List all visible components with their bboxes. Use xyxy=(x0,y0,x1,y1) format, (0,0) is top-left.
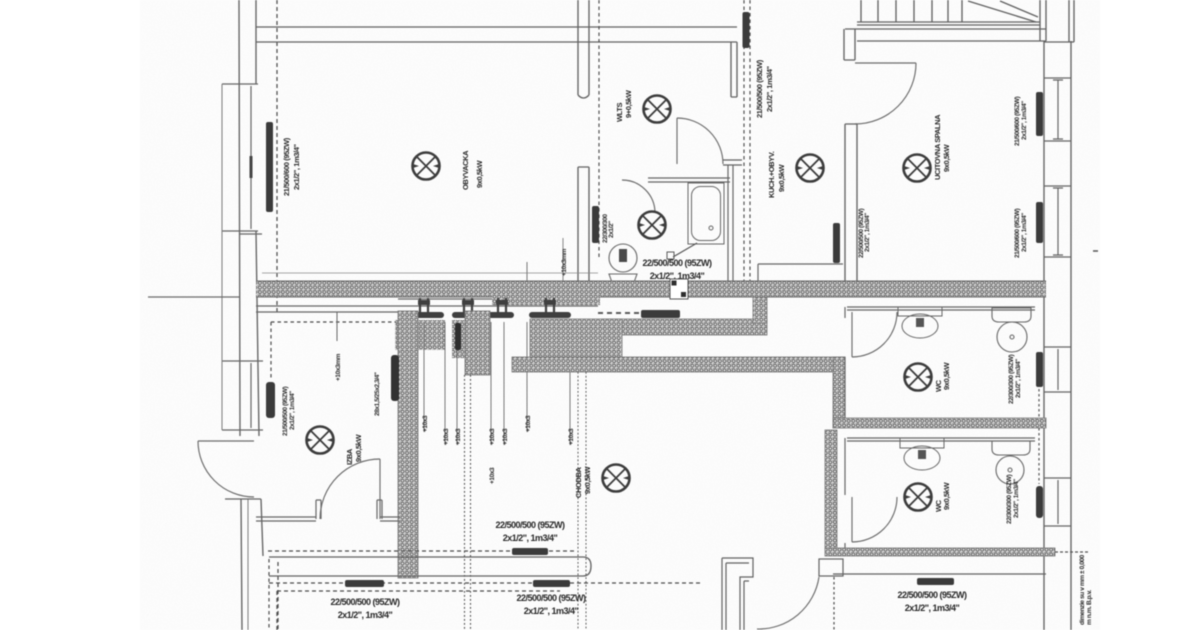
svg-text:2x1/2", 1m3/4": 2x1/2", 1m3/4" xyxy=(503,533,558,543)
svg-text:9x0,5kW: 9x0,5kW xyxy=(942,143,951,172)
svg-text:+10x3: +10x3 xyxy=(568,428,575,445)
svg-text:+10x3: +10x3 xyxy=(525,415,532,432)
svg-text:2x1/2", 1m3/4": 2x1/2", 1m3/4" xyxy=(905,603,960,613)
svg-text:9x0,5kW: 9x0,5kW xyxy=(942,481,951,510)
svg-text:KUCH.+OBYV.: KUCH.+OBYV. xyxy=(767,151,776,198)
svg-text:22/500/500 (95ZW): 22/500/500 (95ZW) xyxy=(516,593,586,603)
svg-text:2x1/2", 1m3/4": 2x1/2", 1m3/4" xyxy=(1021,101,1028,140)
svg-text:UCITOVNA SPALNA: UCITOVNA SPALNA xyxy=(933,114,942,180)
svg-text:m n.m. B.p.v.: m n.m. B.p.v. xyxy=(1086,590,1093,625)
svg-text:9x0,5kW: 9x0,5kW xyxy=(583,465,592,494)
svg-text:22/300/300 (95ZW): 22/300/300 (95ZW) xyxy=(1006,475,1013,524)
svg-text:+10x3: +10x3 xyxy=(422,415,429,432)
svg-text:9x0,5kW: 9x0,5kW xyxy=(777,163,786,192)
svg-text:+10x3: +10x3 xyxy=(489,428,496,445)
svg-text:+10x3: +10x3 xyxy=(489,467,496,484)
svg-text:2x1/2", 1m3/4": 2x1/2", 1m3/4" xyxy=(1021,213,1028,252)
svg-text:22/500/500 (95ZW): 22/500/500 (95ZW) xyxy=(495,520,565,530)
svg-text:2x1/2": 2x1/2" xyxy=(608,221,615,238)
svg-text:2x1/2", 1m3/4": 2x1/2", 1m3/4" xyxy=(289,391,296,430)
svg-text:2x1/2", 1m3/4": 2x1/2", 1m3/4" xyxy=(524,606,579,616)
svg-text:+10x3mm: +10x3mm xyxy=(561,248,568,276)
svg-text:22/500/500 (95ZW): 22/500/500 (95ZW) xyxy=(897,590,967,600)
svg-text:2x1/2", 1m3/4": 2x1/2", 1m3/4" xyxy=(338,610,393,620)
svg-text:9x0,5kW: 9x0,5kW xyxy=(475,159,484,188)
svg-text:2x1/2", 1m3/4": 2x1/2", 1m3/4" xyxy=(1013,479,1020,518)
svg-text:+10x3: +10x3 xyxy=(502,428,509,445)
svg-text:CHODBA: CHODBA xyxy=(574,467,583,498)
svg-text:21/500/500 (95ZW): 21/500/500 (95ZW) xyxy=(755,59,764,118)
svg-text:+10x3: +10x3 xyxy=(443,428,450,445)
svg-text:dimenzie su v mm ± 0,000: dimenzie su v mm ± 0,000 xyxy=(1079,554,1086,625)
svg-text:+10x3: +10x3 xyxy=(455,428,462,445)
svg-text:21/500/600 (95ZW): 21/500/600 (95ZW) xyxy=(1014,209,1021,258)
svg-text:9x0,5kW: 9x0,5kW xyxy=(354,433,363,462)
svg-text:2x1/2", 1m3/4": 2x1/2", 1m3/4" xyxy=(765,65,774,112)
svg-text:OBYVACKA: OBYVACKA xyxy=(461,150,470,190)
svg-text:21/500/600 (95ZW): 21/500/600 (95ZW) xyxy=(1014,97,1021,146)
svg-text:2x1/2", 1m3/4": 2x1/2", 1m3/4" xyxy=(864,213,871,252)
svg-text:+10x3mm: +10x3mm xyxy=(335,353,342,381)
svg-text:WLTS: WLTS xyxy=(615,103,624,122)
svg-text:2x1/2", 1m3/4": 2x1/2", 1m3/4" xyxy=(292,143,301,190)
svg-text:9+0,5kW: 9+0,5kW xyxy=(624,89,633,118)
svg-text:22/300/300 (95ZW): 22/300/300 (95ZW) xyxy=(1008,355,1015,404)
svg-text:2x1/2", 1m3/4": 2x1/2", 1m3/4" xyxy=(1015,359,1022,398)
svg-text:9x0,5kW: 9x0,5kW xyxy=(942,361,951,390)
svg-text:IZBA: IZBA xyxy=(345,448,354,465)
svg-text:28x1,5/25x2,3/4": 28x1,5/25x2,3/4" xyxy=(374,372,381,416)
svg-text:21/500/600 (95ZW): 21/500/600 (95ZW) xyxy=(282,137,291,196)
svg-text:21/500/500 (95ZW): 21/500/500 (95ZW) xyxy=(282,387,289,436)
svg-text:22/500/500 (95ZW): 22/500/500 (95ZW) xyxy=(642,258,712,268)
svg-text:22/500/500 (95ZW): 22/500/500 (95ZW) xyxy=(330,597,400,607)
